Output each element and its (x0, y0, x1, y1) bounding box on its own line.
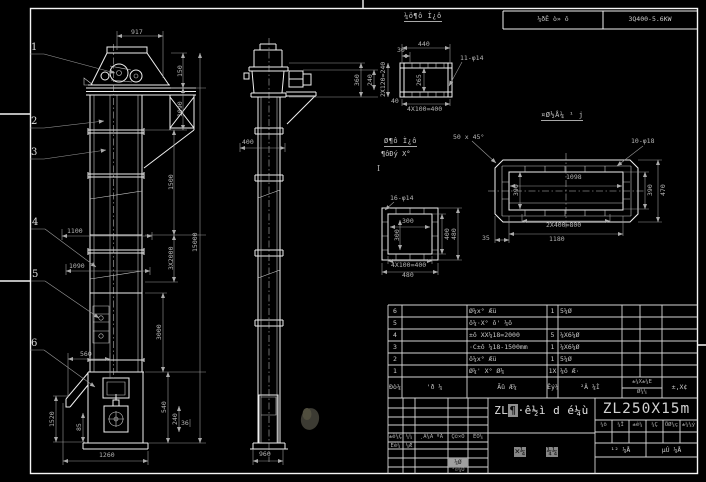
tb-small-4: ¼Ç (646, 423, 663, 429)
design-label: Éè¼ (388, 444, 403, 450)
tb-small-3: ±ê¼ (629, 423, 646, 429)
dim-2x120: 2X120=240 (380, 62, 387, 97)
detail-channel-title: ¼ö¶ô Ì¿ô (404, 13, 442, 22)
dim-1098: 1098 (566, 174, 582, 181)
dim-360: 360 (354, 74, 361, 86)
dim-40: 40 (391, 98, 399, 105)
dim-560: 560 (80, 351, 92, 358)
dim-480-right: 480 (451, 228, 458, 240)
dim-4x100-square: 4X100=400 (391, 262, 426, 269)
dim-300h: 300 (402, 218, 414, 225)
bom-row-no: 1 (388, 368, 402, 375)
tb-small-6: ±¼¼ý (680, 423, 697, 429)
dim-960: 960 (259, 451, 271, 458)
dim-3x2000: 3X2000 (168, 247, 175, 270)
model-number: ZL250X15m (596, 401, 697, 417)
dim-240: 240 (172, 413, 179, 425)
rev-col-count: ¼¼ (403, 435, 415, 441)
drawing-title-highlight: ¶ (508, 404, 517, 417)
tb-small-5: ÖØ¼ç (663, 423, 680, 429)
drawing-title-prefix: ZL (494, 404, 508, 417)
rev-col-date: ÈÕ¼ (468, 435, 488, 441)
craft-label: ¹¤¼Õ (448, 468, 468, 474)
dim-1500: 1500 (168, 174, 175, 190)
chamfer-note: 50 x 45° (453, 134, 484, 141)
balloon-5: 5 (32, 270, 38, 280)
dim-1520: 1520 (49, 411, 56, 427)
dim-440: 440 (418, 41, 430, 48)
topbar-material-note: ¼ðÊ ò» ô (503, 16, 603, 23)
topbar-power-note: 3Q400-5.6KW (603, 16, 697, 23)
audit-cell: ¼Ø (448, 458, 468, 467)
bom-header-name: Ãû Æ¼ (467, 384, 547, 391)
balloon-3: 3 (31, 148, 37, 158)
bom-row-name: Ø¼' X° Ø¼ (469, 368, 547, 375)
dim-540: 540 (161, 401, 168, 413)
dim-35: 35 (482, 235, 490, 242)
dim-917: 917 (131, 29, 143, 36)
tb-small-2: ¼Î (612, 423, 629, 429)
dim-1180: 1180 (549, 236, 565, 243)
dim-15000: 15000 (192, 232, 199, 252)
dim-3000: 3000 (156, 324, 163, 340)
dim-390-right: 390 (647, 184, 654, 196)
dim-2x400: 2X400=800 (546, 222, 581, 229)
bom-row-name: ô¼·X° ô' ¼ô (469, 320, 547, 327)
dim-4x100-channel: 4X100=400 (407, 106, 442, 113)
bom-row-qty: 1 (547, 356, 558, 363)
bom-header-weight-top: ±¼X±¼E (622, 380, 662, 386)
bom-row-qty: 1X (547, 368, 558, 375)
bom-header-weight-bottom: Ø¼¼ (622, 390, 662, 396)
rev-col-file: ¸Ä¼Ä ºÅ (415, 435, 448, 441)
dim-1100: 1100 (67, 228, 83, 235)
tb-small-1: ¼ö (595, 423, 612, 429)
dim-265: 265 (416, 74, 423, 86)
dim-36: 36 (181, 420, 189, 427)
bom-row-name: Ø¼x° Æü (469, 308, 547, 315)
holes-11-14: 11-φ14 (460, 55, 483, 62)
section-mark: I (377, 165, 380, 173)
bom-row-no: 2 (388, 356, 402, 363)
bom-row-qty: 1 (547, 344, 558, 351)
holes-16-14: 16-φ14 (390, 195, 413, 202)
bom-header-remark: ±,X¢ (662, 384, 697, 391)
drawing-subtitle-1: ×¼ (513, 448, 527, 457)
dimension-lines (56, 36, 658, 461)
dim-30: 30 (397, 47, 405, 54)
sheet-total: ¹² ¼Å (595, 447, 646, 454)
detail-flange-title: ¤Ø½Å¼ ¹ j (541, 112, 583, 121)
drawing-title-rest: ·ê½ì d é¼ù (518, 404, 589, 417)
smudge-artifact (299, 406, 322, 432)
bom-row-mat: ¼ô Æ· (560, 368, 620, 375)
bom-header-mat: ²Ä ¼Ì (558, 384, 622, 391)
holes-10-18: 10-φ18 (631, 138, 654, 145)
section-note-line1: Ø¶ô Ì¿ô (384, 138, 417, 147)
dim-400: 400 (242, 139, 254, 146)
bom-header-no: Ðò¼ (388, 384, 402, 391)
dim-1090b: 1090 (69, 263, 85, 270)
rev-col-sign: Ç©×Ö (448, 435, 468, 441)
bom-row-mat: 5¼Ø (560, 356, 620, 363)
balloon-2: 2 (31, 117, 37, 127)
dim-1090: 1090 (177, 101, 184, 117)
bom-row-qty: 1 (547, 308, 558, 315)
section-note-line2: ¶ôÐý X° (381, 151, 411, 158)
dim-390-left: 390 (513, 184, 520, 196)
dim-150: 150 (177, 65, 184, 77)
balloon-6: 6 (31, 339, 37, 349)
bom-row-mat: ¼X6¼Ø (560, 332, 620, 339)
dim-470: 470 (660, 184, 667, 196)
bom-row-name: ·C±ô ¼18-1500mm (469, 344, 547, 351)
dim-300v: 300 (394, 229, 401, 241)
bom-row-no: 6 (388, 308, 402, 315)
bom-row-no: 3 (388, 344, 402, 351)
design-label2: ¼Æ (403, 444, 415, 450)
bom-row-mat: 5¼Ø (560, 308, 620, 315)
dim-480-bottom: 480 (402, 272, 414, 279)
bom-row-mat: ¼X6¼Ø (560, 344, 620, 351)
dim-1260: 1260 (99, 452, 115, 459)
sheet-number: µÚ ¼Å (646, 447, 697, 454)
dim-240-side: 240 (367, 74, 374, 86)
bom-row-no: 4 (388, 332, 402, 339)
cad-canvas: ¼ðÊ ò» ô 3Q400-5.6KW 1 2 3 4 5 6 917 150… (0, 0, 706, 482)
balloon-1: 1 (31, 43, 37, 53)
bom-row-name: ô¼x° Æü (469, 356, 547, 363)
drawing-title: ZL¶·ê½ì d é¼ù (488, 404, 595, 417)
rev-col-mark: ±ê¼Ç (388, 435, 403, 441)
bom-header-code: 'ð ¼ (402, 384, 467, 391)
drawing-subtitle-2: ¼¼ (545, 448, 559, 457)
dim-85: 85 (76, 423, 83, 431)
bom-row-name: ±ô XX¼18=2000 (469, 332, 547, 339)
extension-lines (30, 31, 662, 465)
bom-row-qty: 5 (547, 332, 558, 339)
bom-row-no: 5 (388, 320, 402, 327)
balloon-4: 4 (32, 218, 38, 228)
